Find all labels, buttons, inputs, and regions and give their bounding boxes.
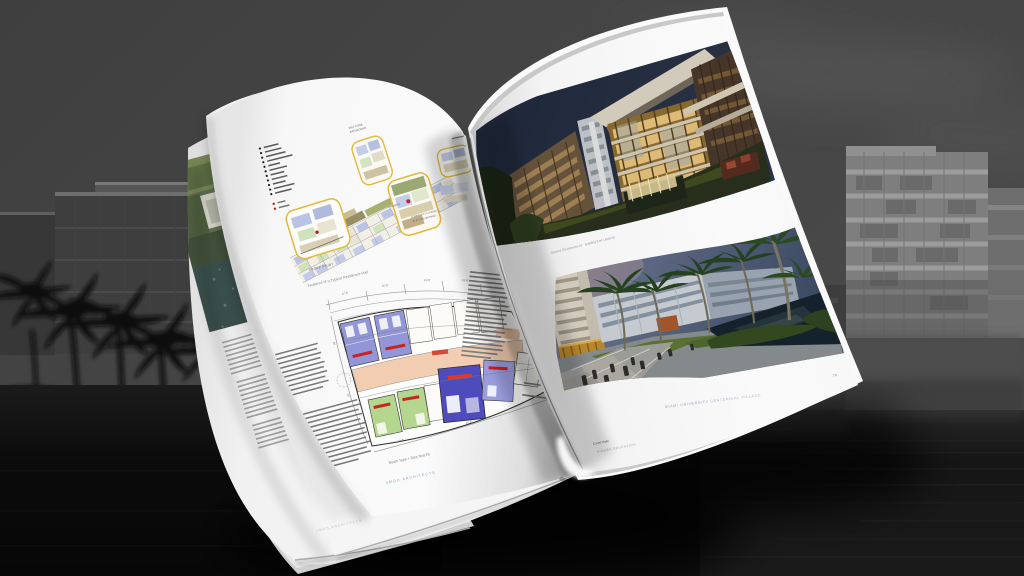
svg-text:74: 74 (832, 373, 837, 378)
svg-text:15'-8": 15'-8" (424, 278, 431, 282)
